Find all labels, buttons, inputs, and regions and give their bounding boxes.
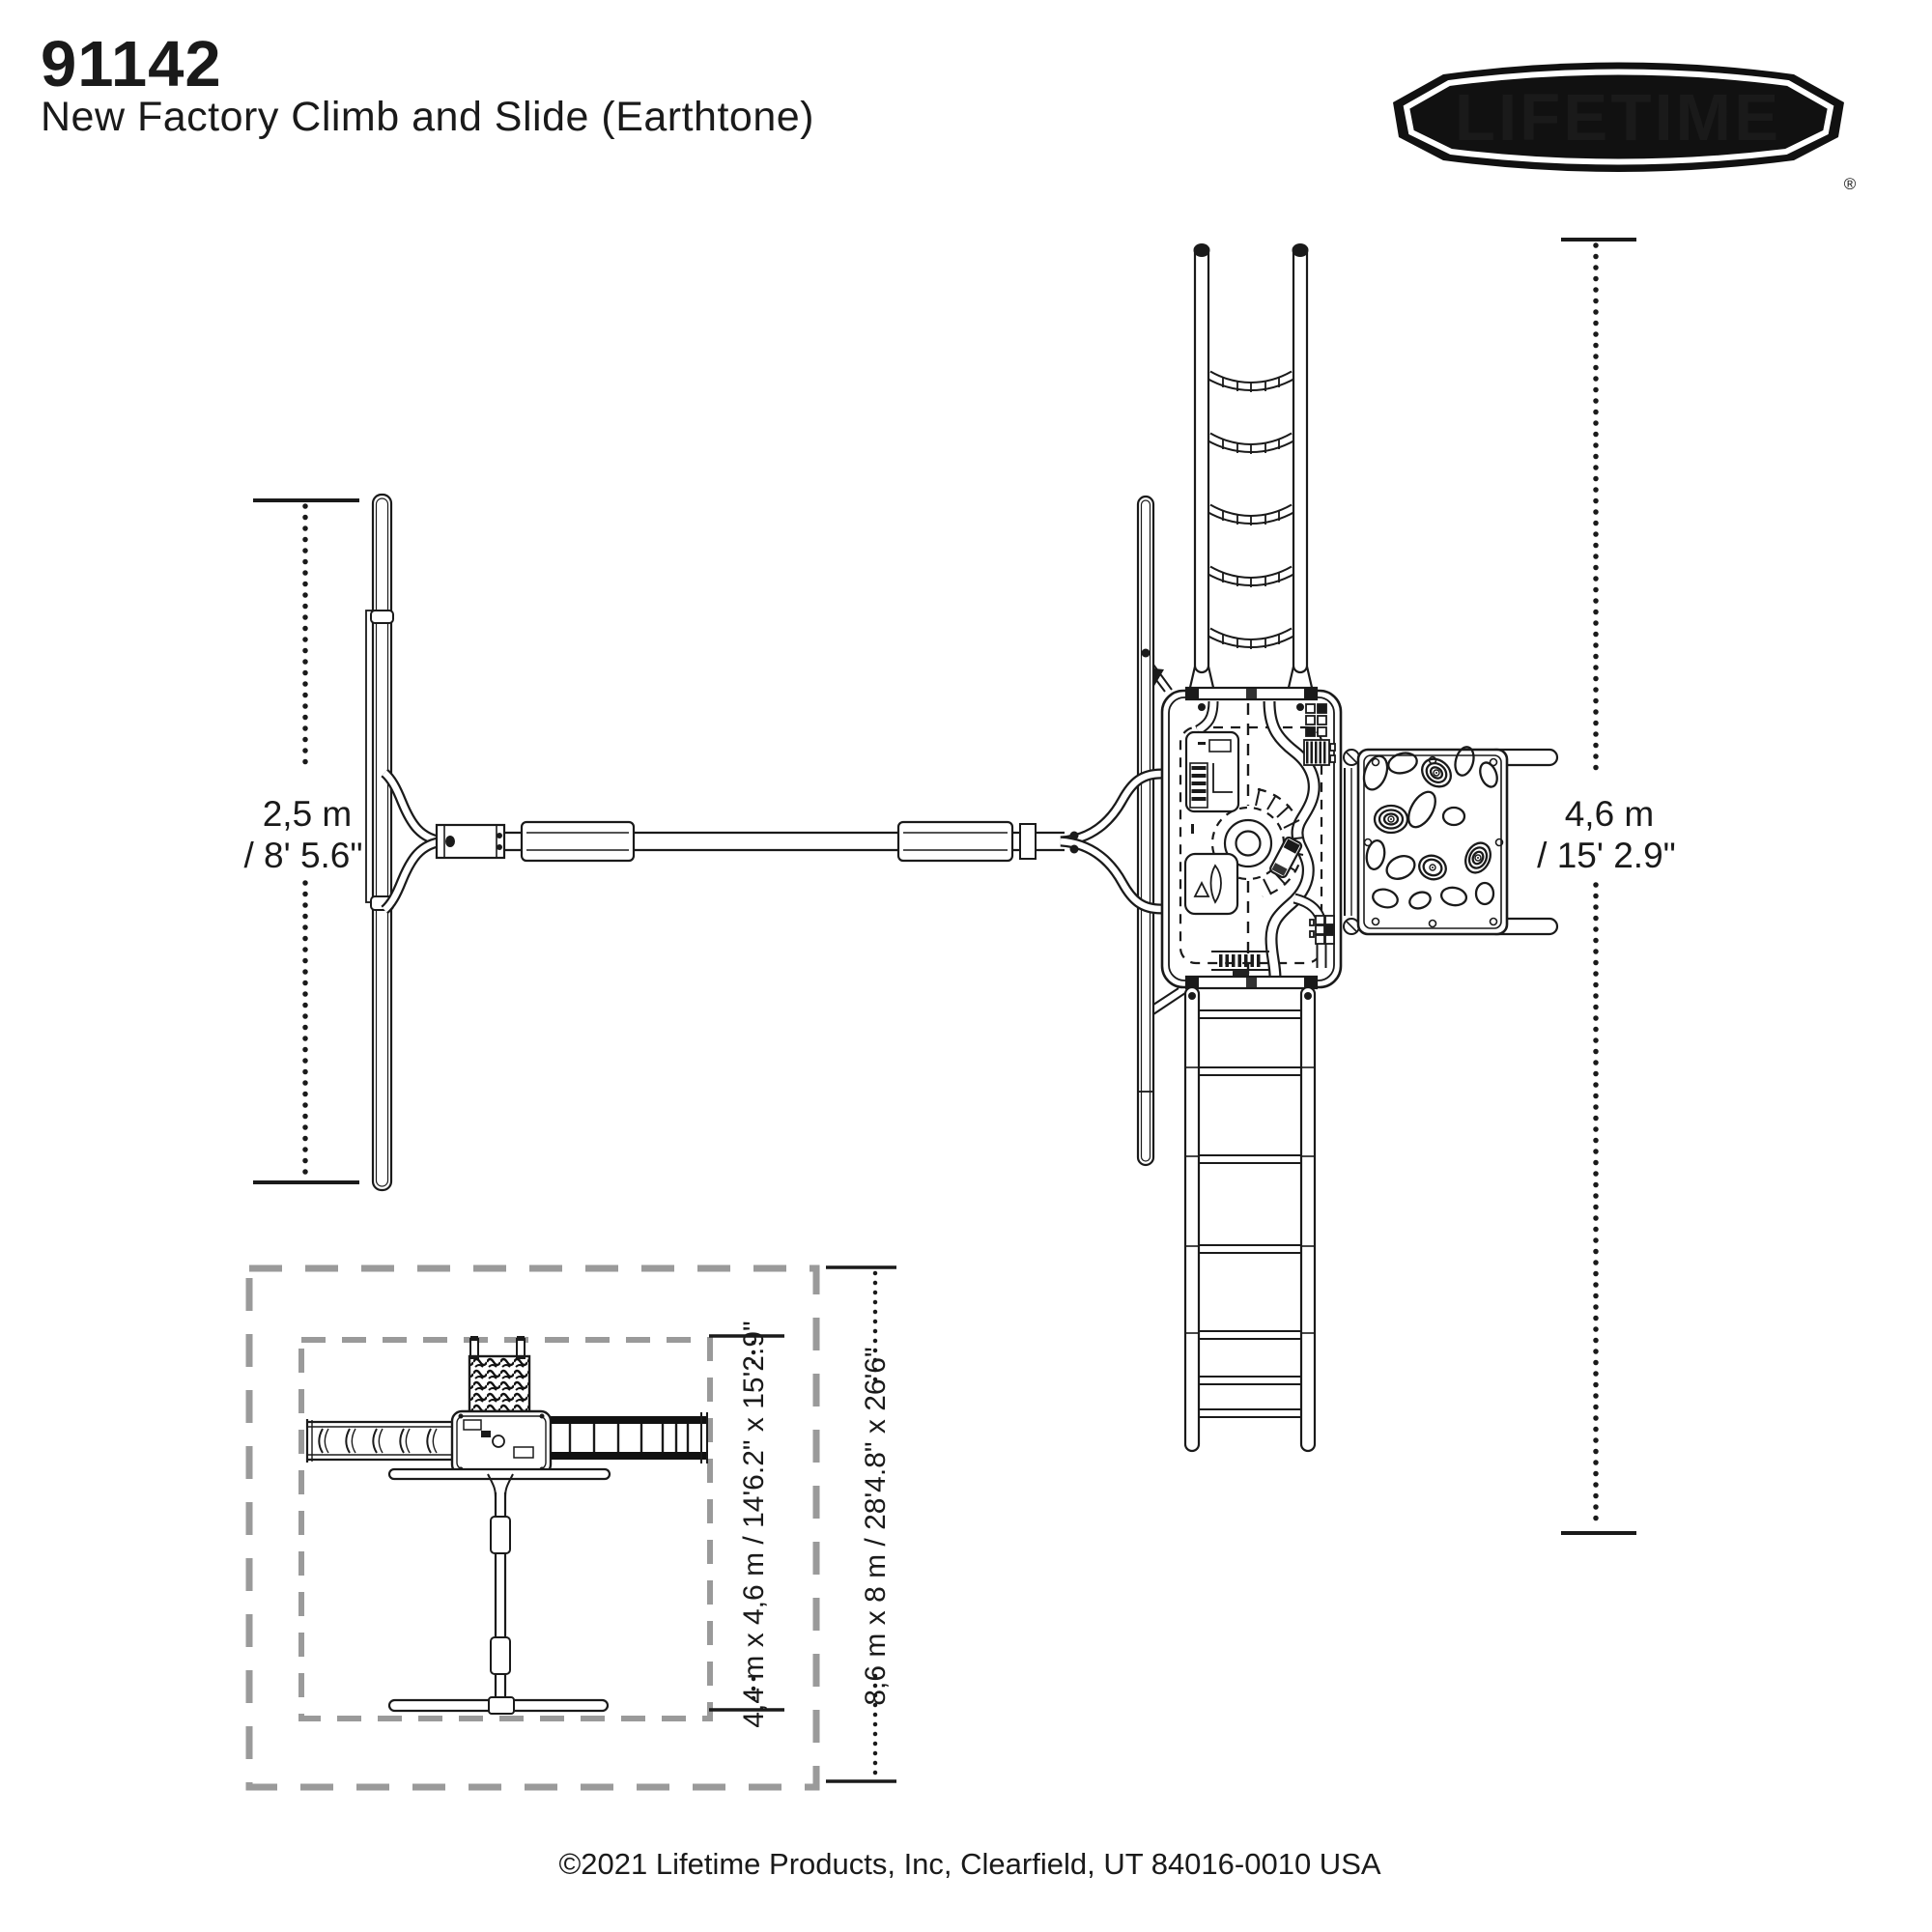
dimension-overall-length xyxy=(1561,240,1636,1533)
ladder-rungs xyxy=(1199,1014,1301,1413)
copyright-text: ©2021 Lifetime Products, Inc, Clearfield… xyxy=(558,1847,1380,1881)
inset-ladder xyxy=(551,1412,708,1463)
inset-support-bar xyxy=(389,1469,610,1479)
inset-rock-wall xyxy=(469,1336,529,1412)
clearance-label: 8,6 m x 8 m / 28'4.8" x 26'6" xyxy=(860,1347,892,1705)
inset-platform xyxy=(452,1411,551,1474)
inset-diagram xyxy=(249,1267,896,1787)
swing-beam xyxy=(384,773,1161,910)
spec-sheet-page: 91142 New Factory Climb and Slide (Earth… xyxy=(0,0,1932,1932)
slide-rails xyxy=(1194,243,1309,672)
inset-playset xyxy=(307,1336,708,1714)
swing-width-imperial: / 8' 5.6" xyxy=(243,836,362,875)
slide-segments xyxy=(1208,375,1293,649)
inset-swing-beam xyxy=(488,1474,513,1700)
access-ladder xyxy=(1185,987,1315,1451)
footprint-label: 4,4 m x 4,6 m / 14'6.2" x 15'2.9" xyxy=(738,1321,770,1727)
platform-deck xyxy=(1153,665,1341,1014)
support-post xyxy=(1138,497,1153,1165)
overall-length-imperial: / 15' 2.9" xyxy=(1537,836,1676,875)
technical-drawing: 2,5 m / 8' 5.6" 4,6 m / 15' 2.9" xyxy=(0,0,1932,1932)
inset-slide xyxy=(307,1419,454,1463)
swing-crossbar xyxy=(366,495,393,1190)
rock-wall xyxy=(1344,745,1557,934)
overall-length-metric: 4,6 m xyxy=(1565,794,1655,834)
slide xyxy=(1189,243,1313,692)
swing-width-metric: 2,5 m xyxy=(263,794,353,834)
ring-hold xyxy=(1375,806,1407,833)
